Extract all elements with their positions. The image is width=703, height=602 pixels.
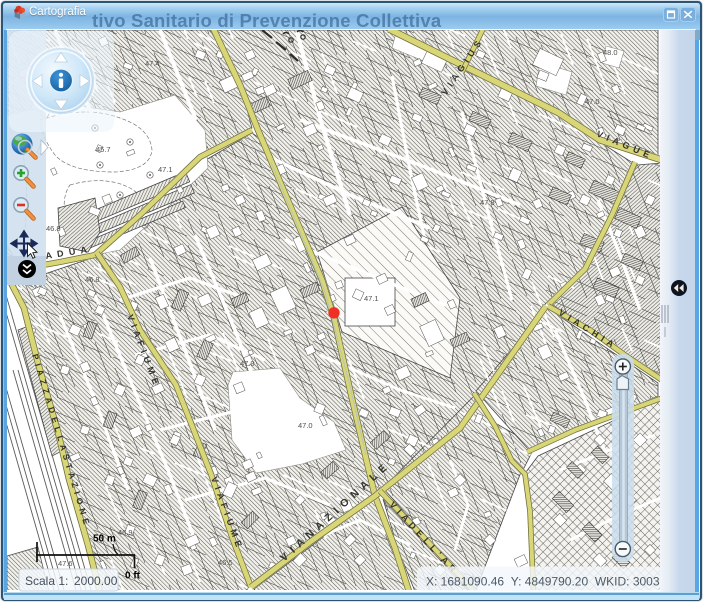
svg-text:2000.00: 2000.00 <box>74 574 118 588</box>
svg-text:0 ft: 0 ft <box>125 571 141 582</box>
svg-text:Scala 1:: Scala 1: <box>25 574 68 588</box>
svg-text:X: 1681090.46 Y: 4849790.20: X: 1681090.46 Y: 4849790.20 WKID: 3003 <box>426 575 660 589</box>
svg-text:50 m: 50 m <box>93 534 116 545</box>
